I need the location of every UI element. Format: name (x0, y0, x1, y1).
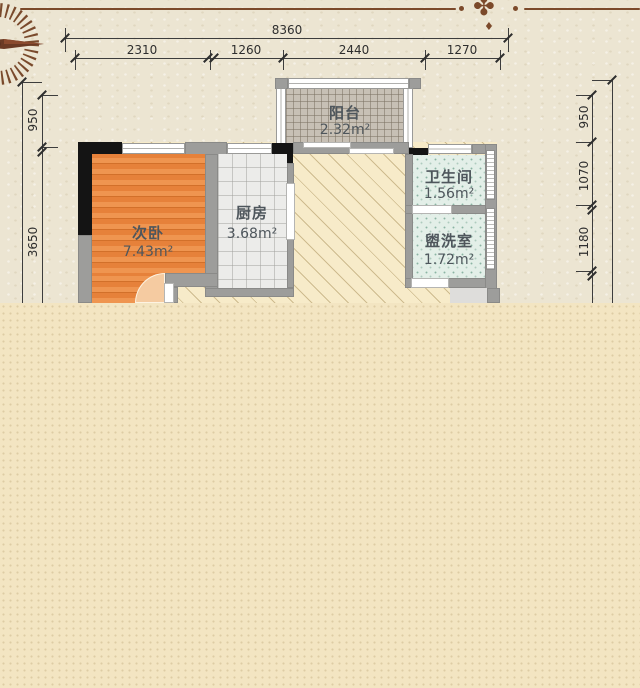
balcony-side-window-left (276, 88, 286, 148)
dim-line-left-inner (42, 95, 43, 303)
room-label-kitchen: 厨房 (212, 202, 292, 223)
dim-line-right-outer (612, 80, 613, 303)
column (78, 142, 92, 235)
compass-rose-icon (0, 0, 53, 99)
floorplan-page: ✤ ♦ 8360 2310 1260 2440 1270 950 3650 (0, 0, 640, 688)
floral-ornament-icon: ✤ (473, 0, 495, 20)
dim-top-segment-3: 2440 (324, 43, 384, 57)
room-label-bathroom: 卫生间 (409, 166, 489, 187)
ornament-dot-left (459, 6, 464, 11)
wall (78, 235, 92, 303)
dim-right-segment-2: 1070 (577, 146, 591, 206)
dim-line-left-outer (22, 82, 23, 303)
dim-ext (500, 50, 501, 70)
dim-top-total: 8360 (257, 23, 317, 37)
dim-ext (42, 95, 58, 96)
dim-top-segment-2: 1260 (216, 43, 276, 57)
dim-left-segment-2: 3650 (26, 212, 40, 272)
dim-ext (75, 50, 76, 70)
balcony-window (288, 78, 409, 89)
dim-ext (508, 28, 509, 52)
wall (205, 288, 294, 297)
bathroom-door (412, 205, 452, 214)
bottom-blank-area (0, 303, 640, 688)
dim-top-segment-4: 1270 (432, 43, 492, 57)
bedroom-door (164, 283, 174, 303)
washroom-door (411, 278, 449, 288)
dim-right-segment-1: 950 (577, 87, 591, 147)
wall (487, 288, 500, 303)
dim-ext (22, 82, 42, 83)
bedroom-window (122, 143, 185, 154)
room-label-washroom: 盥洗室 (409, 230, 489, 251)
wall (205, 154, 218, 292)
balcony-side-window-right (403, 88, 413, 148)
room-area-bedroom: 7.43m² (108, 244, 188, 260)
header-rule-left (20, 8, 456, 10)
dim-ext (65, 28, 66, 52)
room-label-balcony: 阳台 (305, 102, 385, 123)
dim-right-segment-3: 1180 (577, 212, 591, 272)
dim-left-segment-1: 950 (26, 90, 40, 150)
bathroom-window (428, 144, 472, 154)
balcony-sliding-door (303, 142, 351, 148)
ornament-dot-right (513, 6, 518, 11)
dim-line-segments (75, 58, 500, 59)
room-area-kitchen: 3.68m² (212, 226, 292, 242)
kitchen-window (227, 143, 272, 154)
dim-top-segment-1: 2310 (112, 43, 172, 57)
ornament-pendant-icon: ♦ (484, 21, 494, 32)
dim-line-total (65, 38, 508, 39)
appliance-area (450, 288, 487, 303)
room-area-bathroom: 1.56m² (409, 186, 489, 202)
room-area-washroom: 1.72m² (409, 252, 489, 268)
header-rule-right (524, 8, 640, 10)
dim-ext (283, 50, 284, 70)
room-area-balcony: 2.32m² (305, 122, 385, 138)
dim-ext (425, 50, 426, 70)
room-label-bedroom: 次卧 (108, 222, 188, 243)
balcony-sliding-door (349, 148, 394, 154)
